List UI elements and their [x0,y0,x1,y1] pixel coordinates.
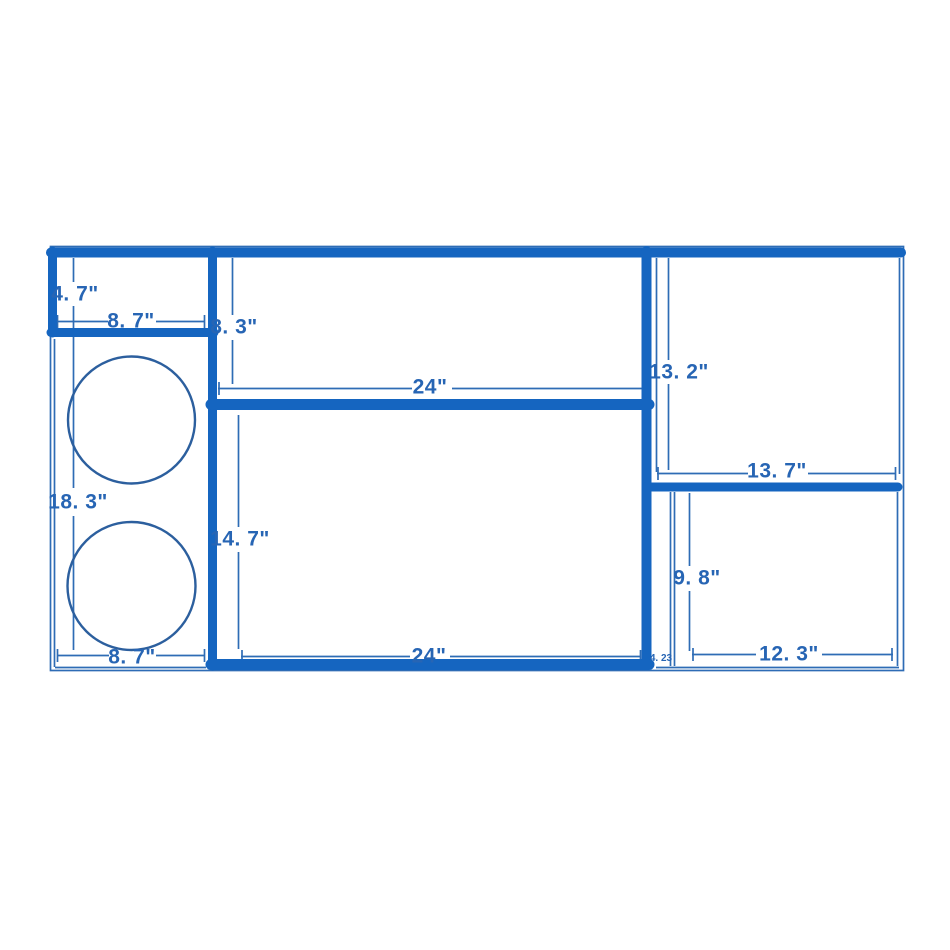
dim-label-24-bottom: 24" [412,646,447,667]
dim-label-8-3: 8. 3" [210,317,257,338]
dim-label-13-7: 13. 7" [747,461,807,482]
circle-cutout-top [68,357,195,484]
outer-frame [51,247,904,671]
dim-label-4-23: 4. 23 [650,654,672,664]
dim-label-14-7: 14. 7" [210,529,270,550]
dimension-drawing: 4. 7" 8. 7" 8. 3" 24" 13. 2" 13. 7" 18. … [0,0,950,950]
dim-label-18-3: 18. 3" [48,492,108,513]
walls [51,251,901,666]
dim-label-8-7-bottom: 8. 7" [108,647,155,668]
dim-label-4-7: 4. 7" [51,284,98,305]
circle-cutout-bottom [68,522,196,650]
drawing-geometry [0,0,950,950]
dim-label-24-top: 24" [413,377,448,398]
dim-label-9-8: 9. 8" [673,568,720,589]
dim-label-13-2: 13. 2" [649,362,709,383]
dim-label-8-7-top: 8. 7" [107,311,154,332]
dim-label-12-3: 12. 3" [759,644,819,665]
